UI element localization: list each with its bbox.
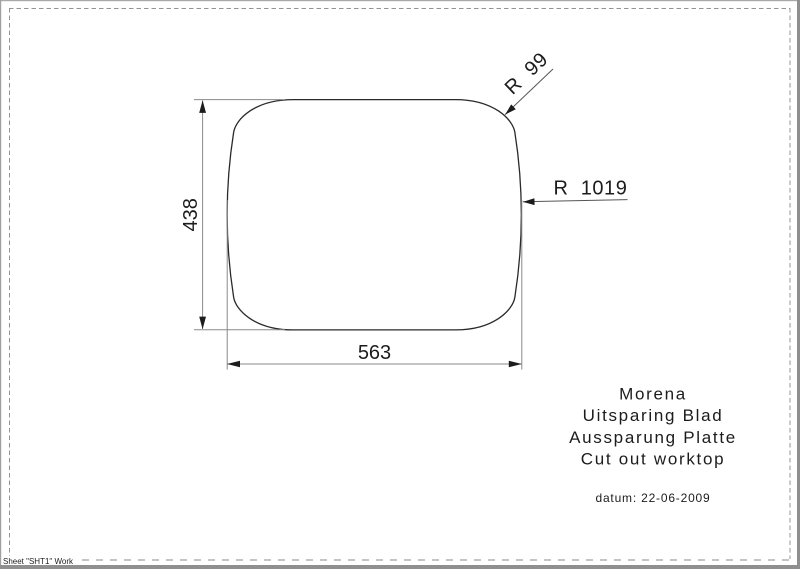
svg-text:datum: 22-06-2009: datum: 22-06-2009: [595, 491, 710, 505]
svg-text:Aussparung Platte: Aussparung Platte: [569, 428, 737, 447]
svg-text:438: 438: [180, 198, 202, 231]
svg-text:Sheet "SHT1" Work: Sheet "SHT1" Work: [3, 557, 74, 566]
svg-text:563: 563: [358, 342, 391, 364]
svg-text:Morena: Morena: [619, 384, 687, 403]
svg-text:R 1019: R 1019: [554, 178, 628, 200]
svg-text:Cut out worktop: Cut out worktop: [581, 450, 726, 469]
svg-text:Uitsparing Blad: Uitsparing Blad: [583, 406, 724, 425]
